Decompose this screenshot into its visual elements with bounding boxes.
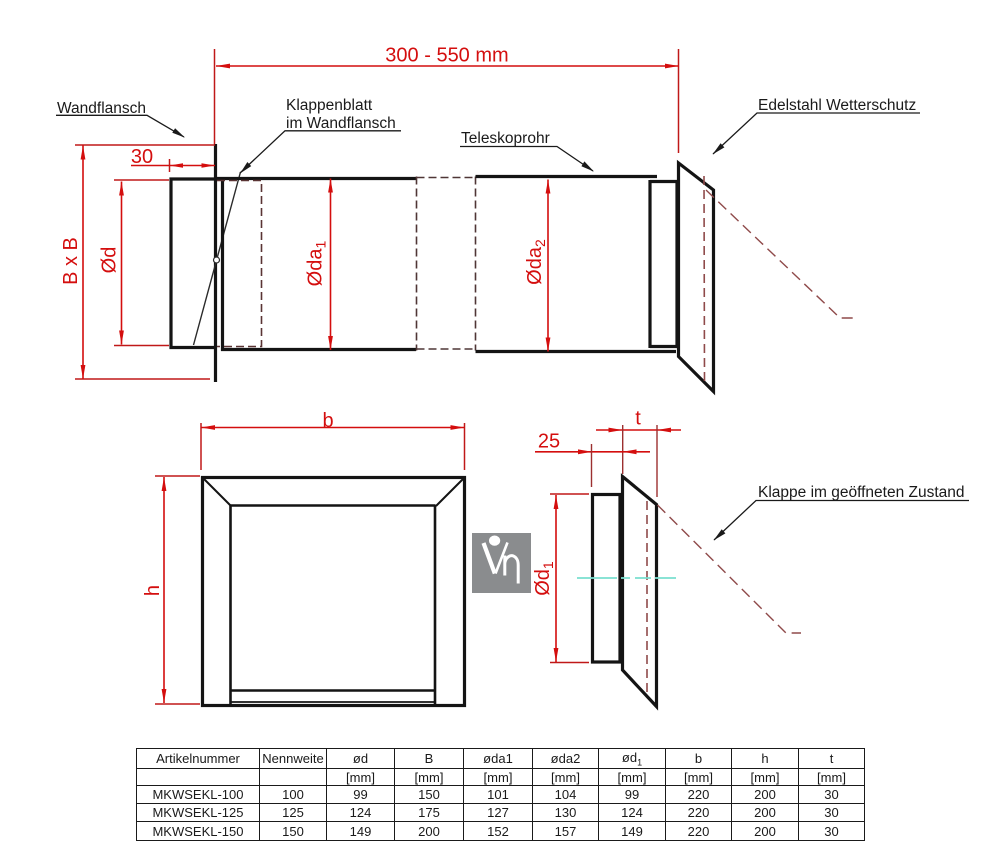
svg-text:300 - 550 mm: 300 - 550 mm [385,45,508,67]
svg-text:Øda2: Øda2 [524,239,548,285]
svg-text:Øda1: Øda1 [305,240,329,286]
svg-text:b: b [322,410,333,432]
svg-text:Klappenblatt: Klappenblatt [286,97,373,114]
svg-text:B x B: B x B [60,237,82,285]
svg-text:Wandflansch: Wandflansch [57,100,146,117]
svg-text:Ød1: Ød1 [532,561,556,596]
svg-text:25: 25 [538,431,560,453]
svg-text:t: t [635,408,641,430]
svg-text:Ød: Ød [99,247,121,274]
svg-text:Klappe im geöffneten Zustand: Klappe im geöffneten Zustand [758,484,965,501]
svg-text:h: h [142,585,164,596]
svg-text:im Wandflansch: im Wandflansch [286,115,396,132]
svg-text:Teleskoprohr: Teleskoprohr [461,130,550,147]
svg-text:Edelstahl Wetterschutz: Edelstahl Wetterschutz [758,97,916,114]
